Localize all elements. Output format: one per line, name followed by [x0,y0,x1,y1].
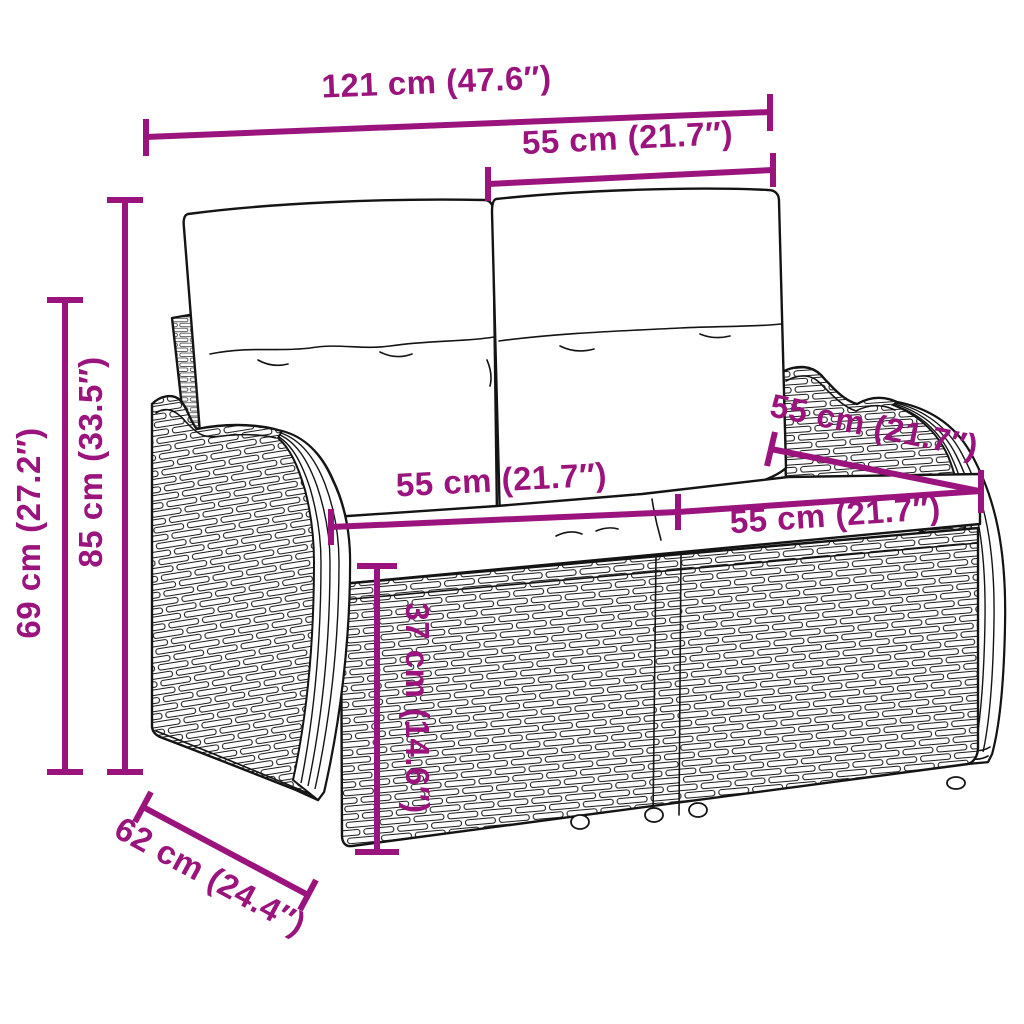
dim-seat-height-label: 37 cm (14.6″) [399,602,436,813]
diagram-svg: 121 cm (47.6″) 55 cm (21.7″) 85 cm (33.5… [0,0,1024,1024]
dim-overall-width-label: 121 cm (47.6″) [321,58,552,104]
foot [947,777,965,789]
foot [645,808,663,822]
foot [571,815,589,829]
product-dimension-diagram: 121 cm (47.6″) 55 cm (21.7″) 85 cm (33.5… [0,0,1024,1024]
dim-overall-depth: 62 cm (24.4″) [109,792,316,943]
dim-overall-depth-label: 62 cm (24.4″) [109,809,312,942]
dim-armrest-height-label: 69 cm (27.2″) [10,427,47,638]
dim-total-height: 85 cm (33.5″) [72,200,143,772]
foot [689,803,707,817]
dim-total-height-label: 85 cm (33.5″) [72,356,109,567]
left-armrest [152,396,350,800]
